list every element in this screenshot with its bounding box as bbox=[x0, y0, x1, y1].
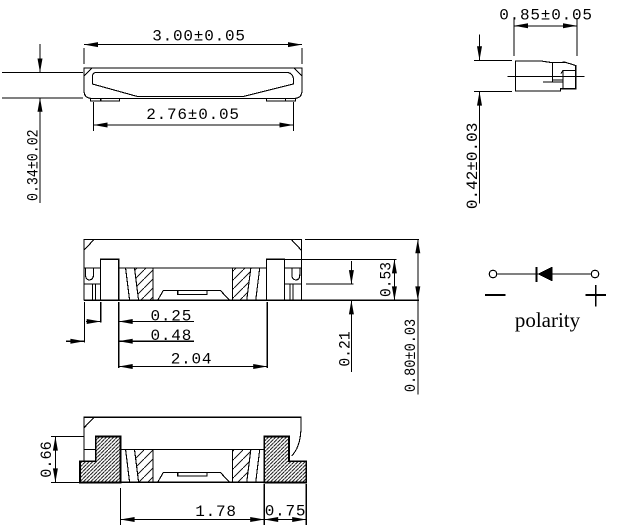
svg-text:0.85±0.05: 0.85±0.05 bbox=[499, 6, 593, 24]
svg-text:1.78: 1.78 bbox=[195, 503, 237, 521]
svg-text:0.34±0.02: 0.34±0.02 bbox=[25, 129, 42, 201]
svg-text:3.00±0.05: 3.00±0.05 bbox=[152, 28, 246, 46]
svg-text:0.42±0.03: 0.42±0.03 bbox=[464, 123, 482, 209]
svg-text:0.80±0.03: 0.80±0.03 bbox=[403, 319, 420, 392]
svg-text:polarity: polarity bbox=[515, 308, 581, 332]
svg-text:0.66: 0.66 bbox=[38, 441, 56, 477]
svg-text:2.76±0.05: 2.76±0.05 bbox=[146, 106, 240, 124]
svg-text:0.25: 0.25 bbox=[150, 307, 192, 325]
svg-text:0.53: 0.53 bbox=[377, 262, 396, 297]
svg-text:0.48: 0.48 bbox=[150, 327, 192, 345]
svg-text:0.75: 0.75 bbox=[265, 503, 307, 521]
svg-text:2.04: 2.04 bbox=[171, 351, 213, 369]
svg-text:0.21: 0.21 bbox=[336, 331, 355, 366]
